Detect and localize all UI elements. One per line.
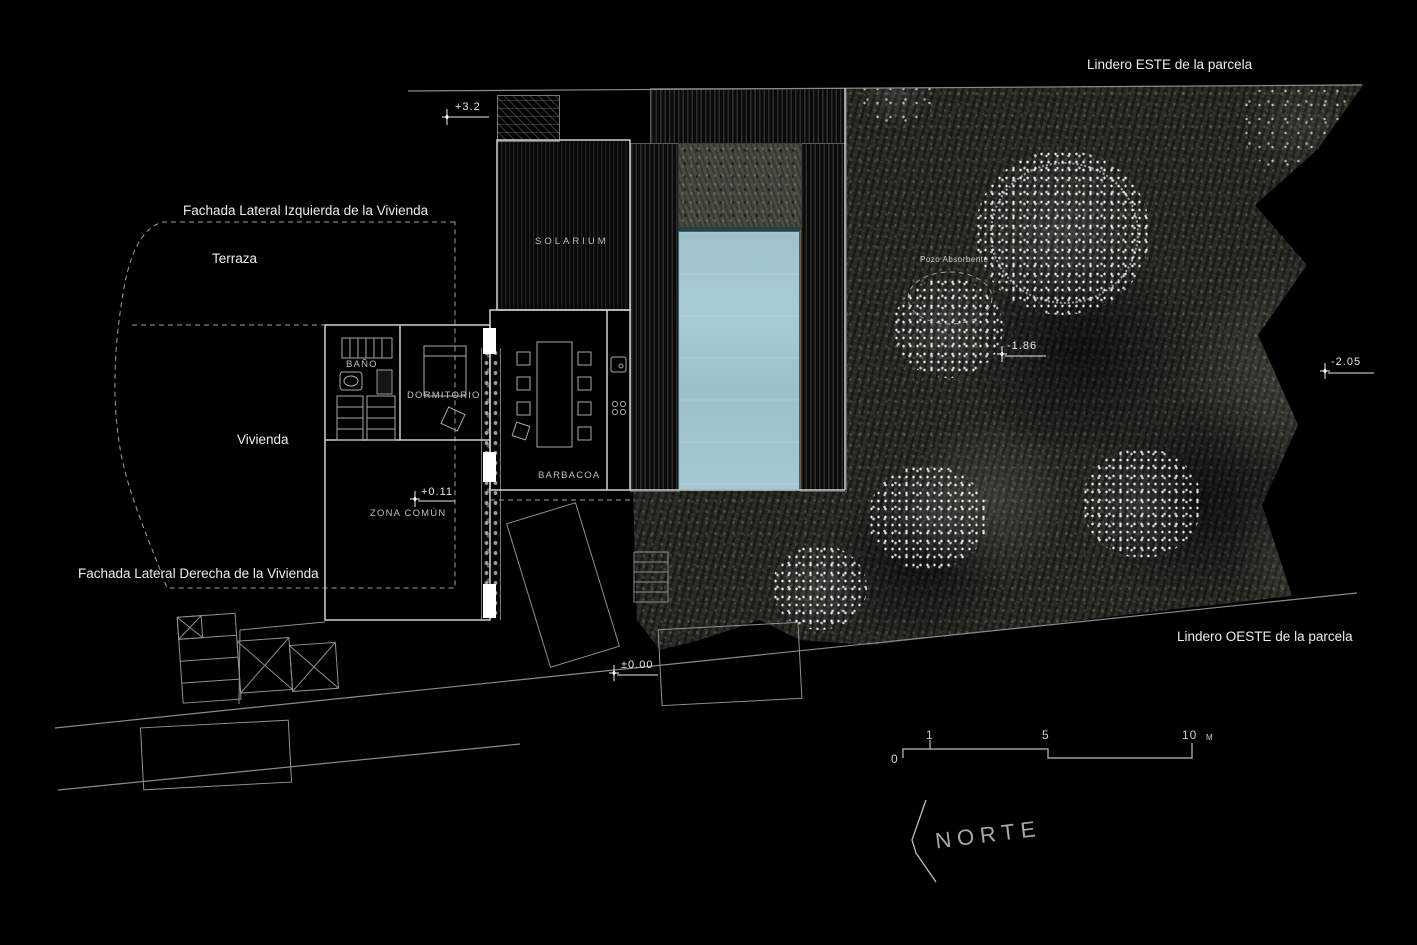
elevation-value: -2.05 (1331, 356, 1361, 368)
pool-deck-left (630, 143, 680, 492)
elevation-value: +3.2 (455, 101, 481, 113)
stair-block (497, 95, 560, 142)
facade-label-derecha: Fachada Lateral Derecha de la Vivienda (78, 566, 319, 581)
scale-label-0: 0 (891, 752, 899, 766)
scale-label-5: 5 (1042, 728, 1050, 742)
solarium-deck (497, 140, 630, 310)
boundary-label-este: Lindero ESTE de la parcela (1087, 57, 1252, 72)
stone-wall-strip (481, 348, 501, 620)
tree-cluster (1240, 70, 1360, 175)
swimming-pool (678, 228, 801, 490)
tree-cluster (858, 68, 933, 123)
room-label-bano: BAÑO (346, 359, 378, 370)
tree-cluster (868, 465, 988, 570)
north-arrow-icon (912, 800, 936, 882)
elevation-value: ±0.00 (621, 659, 653, 671)
room-label-terraza: Terraza (212, 251, 257, 266)
tree-ring (990, 162, 1139, 304)
boundary-label-oeste: Lindero OESTE de la parcela (1177, 629, 1353, 644)
site-plan: Lindero ESTE de la parcela Lindero OESTE… (0, 0, 1417, 945)
room-label-vivienda: Vivienda (237, 432, 289, 447)
room-label-barbacoa: BARBACOA (538, 470, 600, 481)
elevation-value: -1.86 (1007, 340, 1037, 352)
garden-highlight (1230, 470, 1390, 630)
planted-bed (678, 143, 802, 228)
facade-label-izquierda: Fachada Lateral Izquierda de la Vivienda (183, 203, 428, 218)
room-label-dormitorio: DORMITORIO (407, 390, 481, 401)
tree-cluster (893, 278, 1003, 378)
scale-bar (903, 740, 1192, 758)
garden-highlight (1180, 260, 1400, 480)
top-deck (650, 88, 847, 145)
pool-deck-right (800, 143, 847, 492)
elevation-value: +0.11 (421, 486, 453, 498)
tree-cluster (1082, 448, 1202, 558)
tree-cluster (772, 545, 867, 630)
room-label-zona-comun: ZONA COMÚN (370, 508, 446, 519)
room-label-solarium: SOLARIUM (535, 236, 609, 247)
north-label: NORTE (934, 816, 1043, 855)
scale-label-10: 10 (1182, 728, 1197, 742)
pozo-absorbente-label: Pozo Absorbente (920, 255, 988, 264)
scale-label-1: 1 (926, 728, 934, 742)
scale-unit-label: M (1206, 733, 1213, 742)
